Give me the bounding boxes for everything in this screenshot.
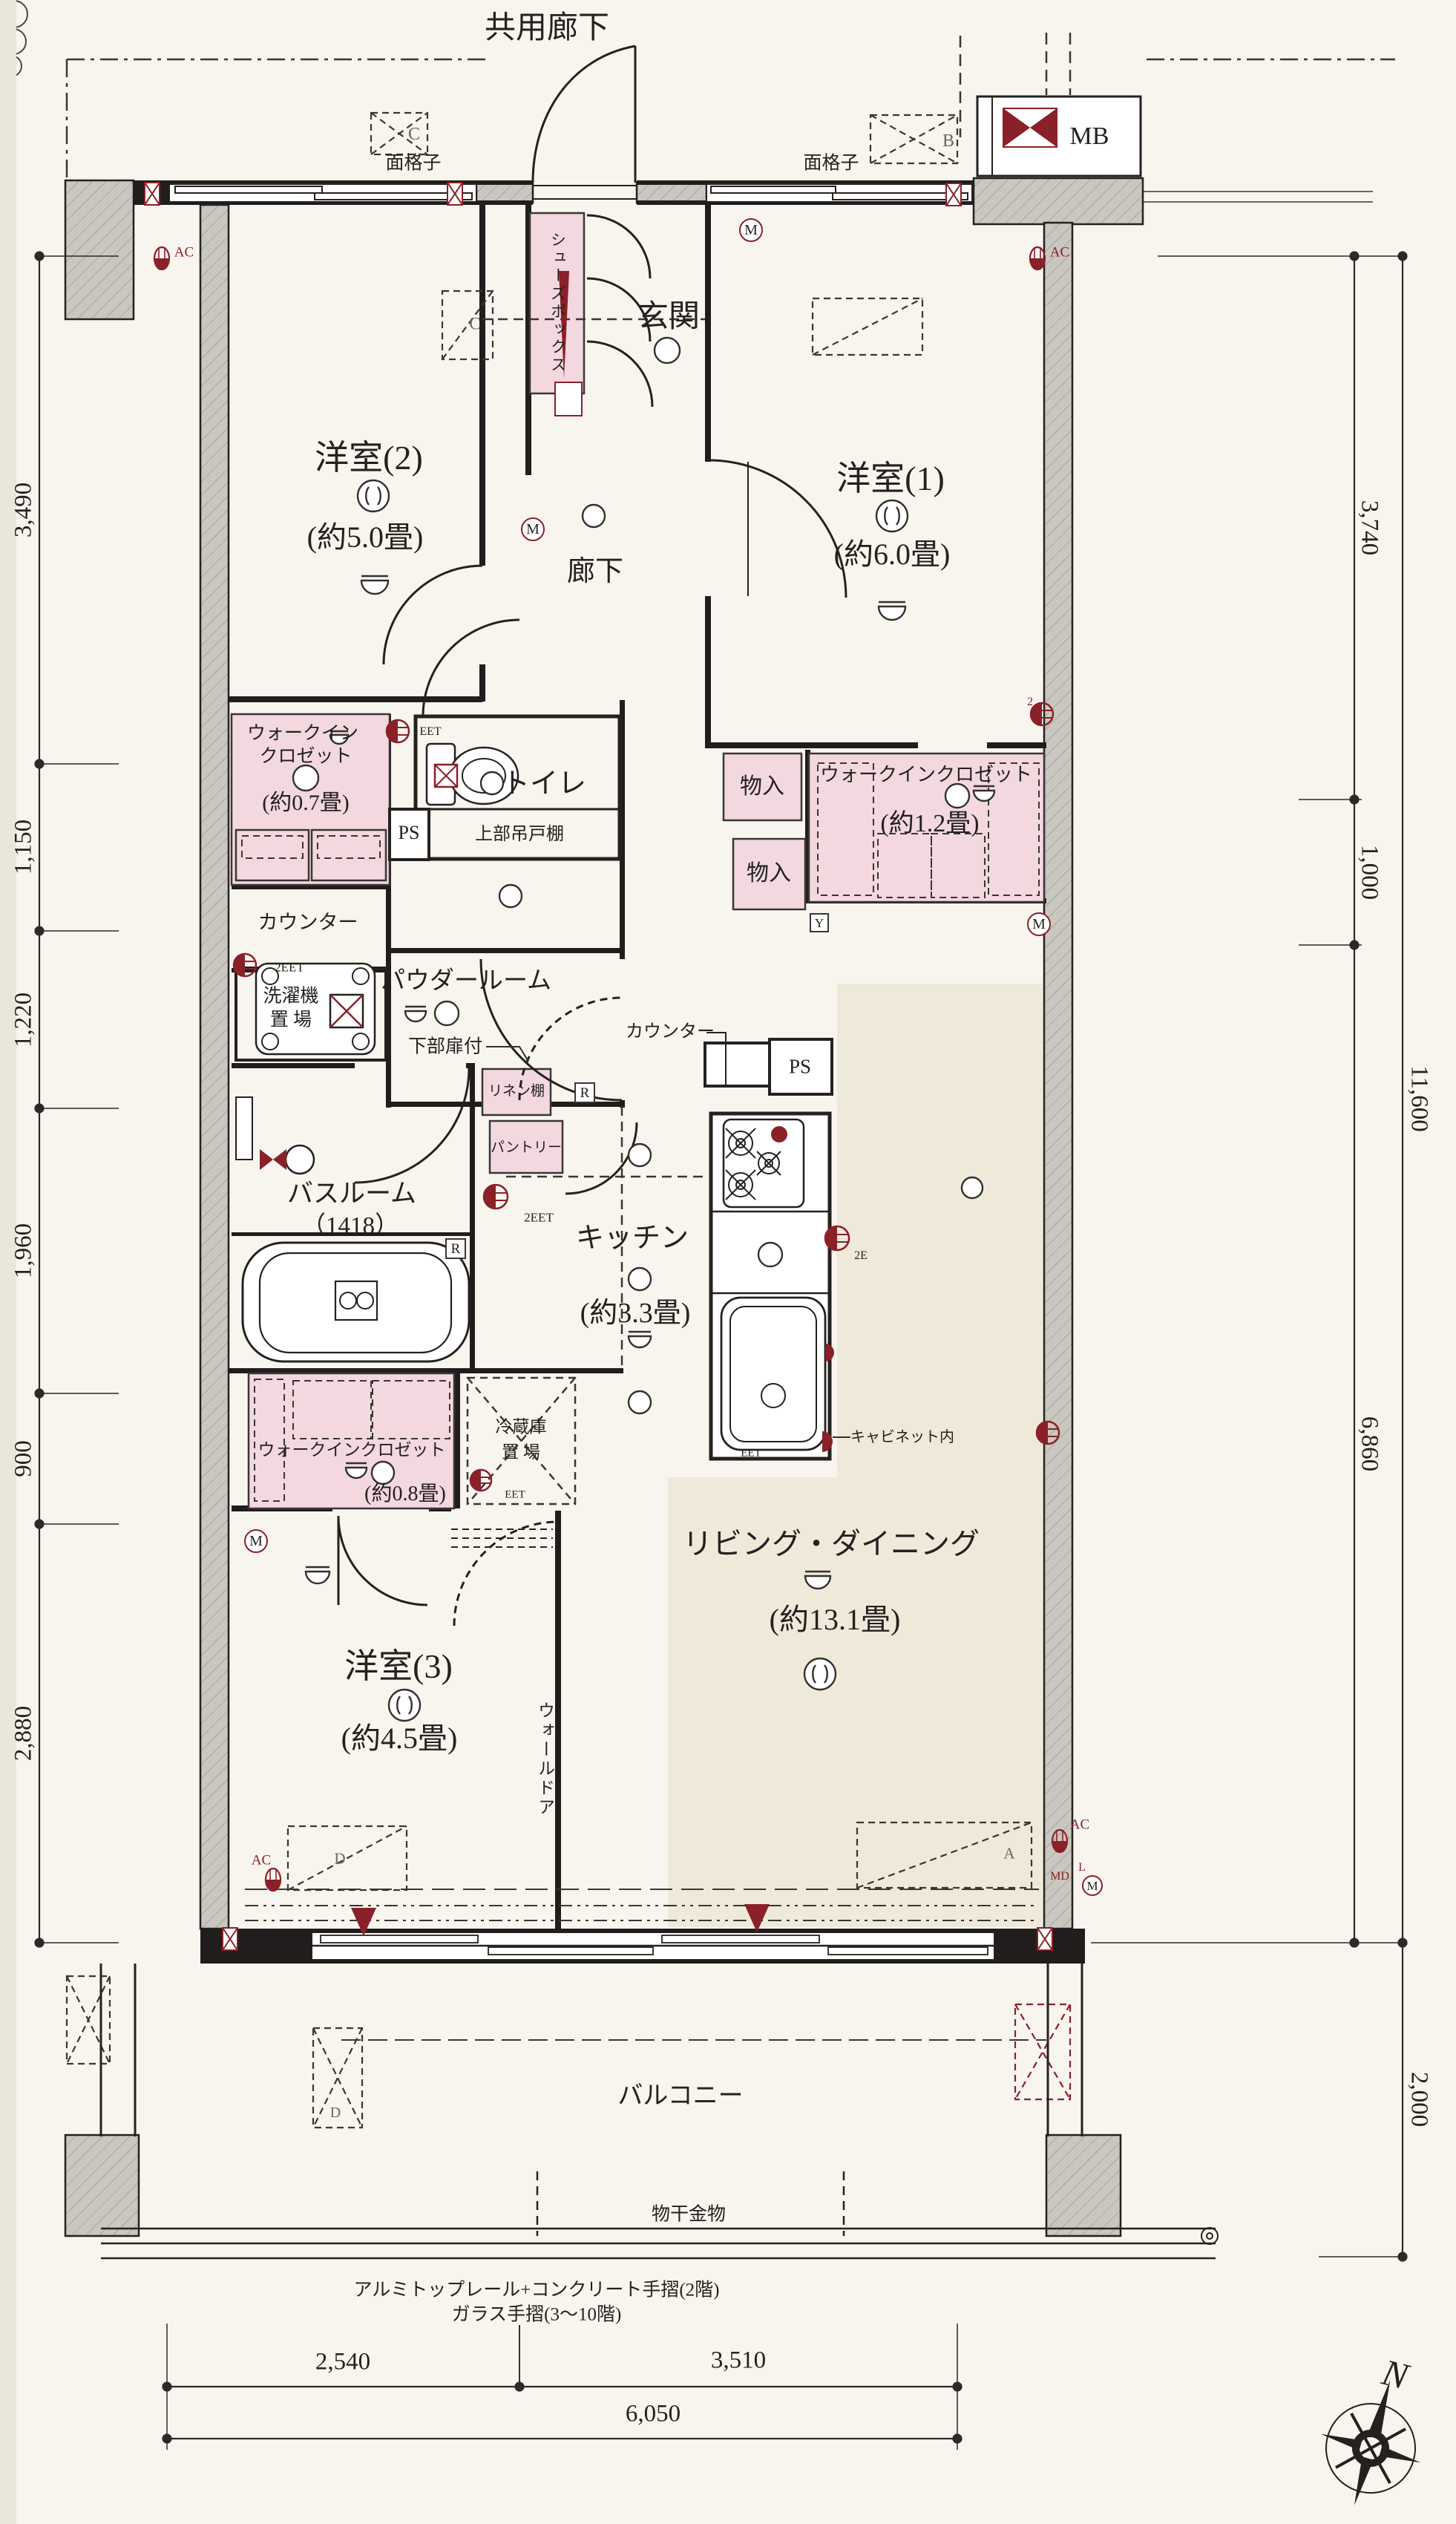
dim-left-1: 3,490 xyxy=(12,483,36,537)
storage2-label: 物入 xyxy=(747,863,791,885)
wall-block-top-right xyxy=(974,178,1143,224)
pantry-label: パントリー xyxy=(491,1141,562,1155)
ac-outdoor-unit-right xyxy=(1015,2004,1070,2099)
south-windows xyxy=(312,1932,994,1960)
fridge-space xyxy=(468,1378,575,1504)
r-marker-2: R xyxy=(445,1238,466,1259)
cabinet-note: キャビネット内 xyxy=(850,1430,954,1445)
r-marker-1: R xyxy=(574,1082,595,1103)
kitchen-ps-label: PS xyxy=(789,1057,811,1077)
m-letter: M xyxy=(249,1534,263,1549)
corridor-windows xyxy=(169,184,972,202)
r-letter: R xyxy=(580,1086,590,1100)
dim-bottom-2: 3,510 xyxy=(711,2349,766,2373)
outlet-label-eet-toilet: EET xyxy=(419,726,441,738)
room-size-kitchen: (約3.3畳) xyxy=(580,1299,691,1327)
pillar-bottom-left xyxy=(65,2135,139,2236)
outlet-label-eet-fridge: EET xyxy=(505,1490,525,1501)
m-letter: M xyxy=(1086,1880,1098,1892)
outlet-label-2eet-kitchen: 2EET xyxy=(524,1212,554,1224)
linen-label: リネン棚 xyxy=(488,1085,545,1099)
dim-left-5: 900 xyxy=(12,1440,36,1477)
dim-right-balcony: 2,000 xyxy=(1407,2072,1432,2127)
shoebox-label: シューズボックス xyxy=(550,232,565,374)
fridge-line1: 冷蔵庫 xyxy=(496,1419,547,1436)
room-label-toilet: トイレ xyxy=(502,770,586,798)
wic08-label: ウォークインクロゼット xyxy=(258,1442,446,1459)
dim-right-total: 11,600 xyxy=(1407,1065,1432,1132)
wic07-size: (約0.7畳) xyxy=(262,792,349,814)
l-label: L xyxy=(1078,1862,1086,1874)
entrance-door-arc xyxy=(533,46,635,183)
wall-right xyxy=(1044,223,1072,1929)
room-size-western2: (約5.0畳) xyxy=(307,523,424,552)
m-marker-1: M xyxy=(739,218,763,242)
dim-right-2: 1,000 xyxy=(1357,845,1382,900)
y-letter: Y xyxy=(815,917,824,929)
ac-label-3: AC xyxy=(252,1854,271,1868)
laundry-hardware-label: 物干金物 xyxy=(652,2206,726,2224)
compass-rose xyxy=(1305,2365,1440,2520)
dim-right-1: 3,740 xyxy=(1357,500,1382,555)
upper-cabinet-label: 上部吊戸棚 xyxy=(475,825,564,843)
room-label-kitchen: キッチン xyxy=(576,1224,689,1252)
shoebox-door-arc xyxy=(587,215,650,278)
y-marker: Y xyxy=(810,913,829,932)
kitchen-counter xyxy=(705,1043,770,1086)
corridor-boundary-lines xyxy=(67,33,1395,202)
wic12-size: (約1.2畳) xyxy=(880,811,979,837)
bathroom-door-arc xyxy=(355,1068,469,1183)
floorplan-drawing xyxy=(0,0,1456,2524)
wic12-label: ウォークインクロゼット xyxy=(820,765,1032,785)
wic08-size: (約0.8畳) xyxy=(364,1484,446,1505)
stove-indicator xyxy=(771,1126,787,1142)
western2-door-arc xyxy=(384,566,482,664)
outlet-count-2: 2 xyxy=(1027,696,1033,708)
ac-spot-letter-d: D xyxy=(334,1851,345,1867)
m-letter: M xyxy=(526,522,540,537)
room-label-entrance: 玄関 xyxy=(637,301,700,333)
wic07-line1: ウォークイン xyxy=(247,725,358,743)
dim-left-2: 1,150 xyxy=(12,820,36,874)
room-size-bathroom: （1418） xyxy=(301,1214,399,1239)
m-marker-3: M xyxy=(1027,912,1051,936)
storage1-label: 物入 xyxy=(740,776,784,798)
pillar-top-left xyxy=(65,180,134,319)
entrance-flank-left xyxy=(476,183,533,203)
balcony-label: バルコニー xyxy=(617,2084,743,2109)
dim-left-6: 2,880 xyxy=(12,1706,36,1761)
counter-wash-label: カウンター xyxy=(258,913,358,933)
meter-box-label: MB xyxy=(1070,124,1109,149)
m-letter: M xyxy=(1032,917,1046,932)
room-label-western3: 洋室(3) xyxy=(344,1650,453,1684)
grille-label-right: 面格子 xyxy=(803,154,859,173)
room-size-living-dining: (約13.1畳) xyxy=(770,1605,901,1635)
fridge-line2: 置 場 xyxy=(502,1444,540,1461)
ac-spot-letter-a: A xyxy=(1003,1846,1014,1862)
outlet-label-2e: 2E xyxy=(854,1250,868,1262)
outlet-label-eet-sink: EET xyxy=(741,1448,761,1459)
r-letter: R xyxy=(451,1242,461,1256)
pantry-door-arc xyxy=(565,1122,637,1194)
dim-bottom-1: 2,540 xyxy=(315,2350,370,2375)
ac-label-2: AC xyxy=(1050,246,1069,260)
corridor-label: 共用廊下 xyxy=(485,13,609,44)
ac-sleeve-letter-c: C xyxy=(469,315,480,333)
room-label-living-dining: リビング・ダイニング xyxy=(683,1529,980,1559)
grille-label-left: 面格子 xyxy=(385,154,441,173)
outlet-label-2eet-laundry: 2EET xyxy=(275,961,304,974)
grille-letter-c: C xyxy=(408,125,420,143)
md-label: MD xyxy=(1050,1871,1069,1883)
m-marker-2: M xyxy=(521,517,545,541)
western3-door-arc xyxy=(338,1516,427,1605)
meter-box xyxy=(977,97,1141,176)
counter-kitchen-label: カウンター xyxy=(626,1023,715,1041)
railing-note-1: アルミトップレール+コンクリート手摺(2階) xyxy=(353,2281,719,2300)
dim-bottom-total: 6,050 xyxy=(626,2402,681,2427)
wall-left xyxy=(200,205,229,1929)
room-label-western1: 洋室(1) xyxy=(836,462,945,496)
dim-left-3: 1,220 xyxy=(12,993,36,1047)
m-marker-4: M xyxy=(244,1529,268,1553)
dim-right-3: 6,860 xyxy=(1357,1416,1382,1471)
grille-letter-b: B xyxy=(942,132,954,150)
wic07-line2: クロゼット xyxy=(259,748,352,766)
room-size-western3: (約4.5畳) xyxy=(341,1724,458,1753)
dim-left-4: 1,960 xyxy=(12,1223,36,1278)
room-label-bathroom: バスルーム xyxy=(287,1181,416,1207)
m-letter: M xyxy=(744,223,758,238)
floorplan-page: 共用廊下 MB C B 面格子 面格子 D 玄関 シューズボックス C 洋室(2… xyxy=(0,0,1456,2524)
wall-door-label: ウォールドア xyxy=(537,1701,554,1817)
pipe-space-label: PS xyxy=(399,823,420,843)
room-label-powder: パウダールーム xyxy=(381,970,551,994)
ac-label-4: AC xyxy=(1070,1818,1089,1832)
laundry-line1: 洗濯機 xyxy=(263,987,318,1006)
ac-label-1: AC xyxy=(174,246,194,260)
room-label-hallway: 廊下 xyxy=(567,558,623,586)
entrance-flank-right xyxy=(637,183,706,203)
lower-door-note: 下部扉付 xyxy=(408,1038,482,1056)
room-label-western2: 洋室(2) xyxy=(315,441,423,475)
laundry-line2: 置 場 xyxy=(270,1011,312,1030)
room-size-western1: (約6.0畳) xyxy=(834,540,951,569)
m-marker-5: M xyxy=(1082,1875,1103,1896)
western1-door-arc xyxy=(709,460,846,598)
railing-note-2: ガラス手摺(3～10階) xyxy=(452,2306,622,2324)
balcony-letter-d: D xyxy=(330,2105,341,2120)
pillar-bottom-right xyxy=(1046,2135,1121,2236)
